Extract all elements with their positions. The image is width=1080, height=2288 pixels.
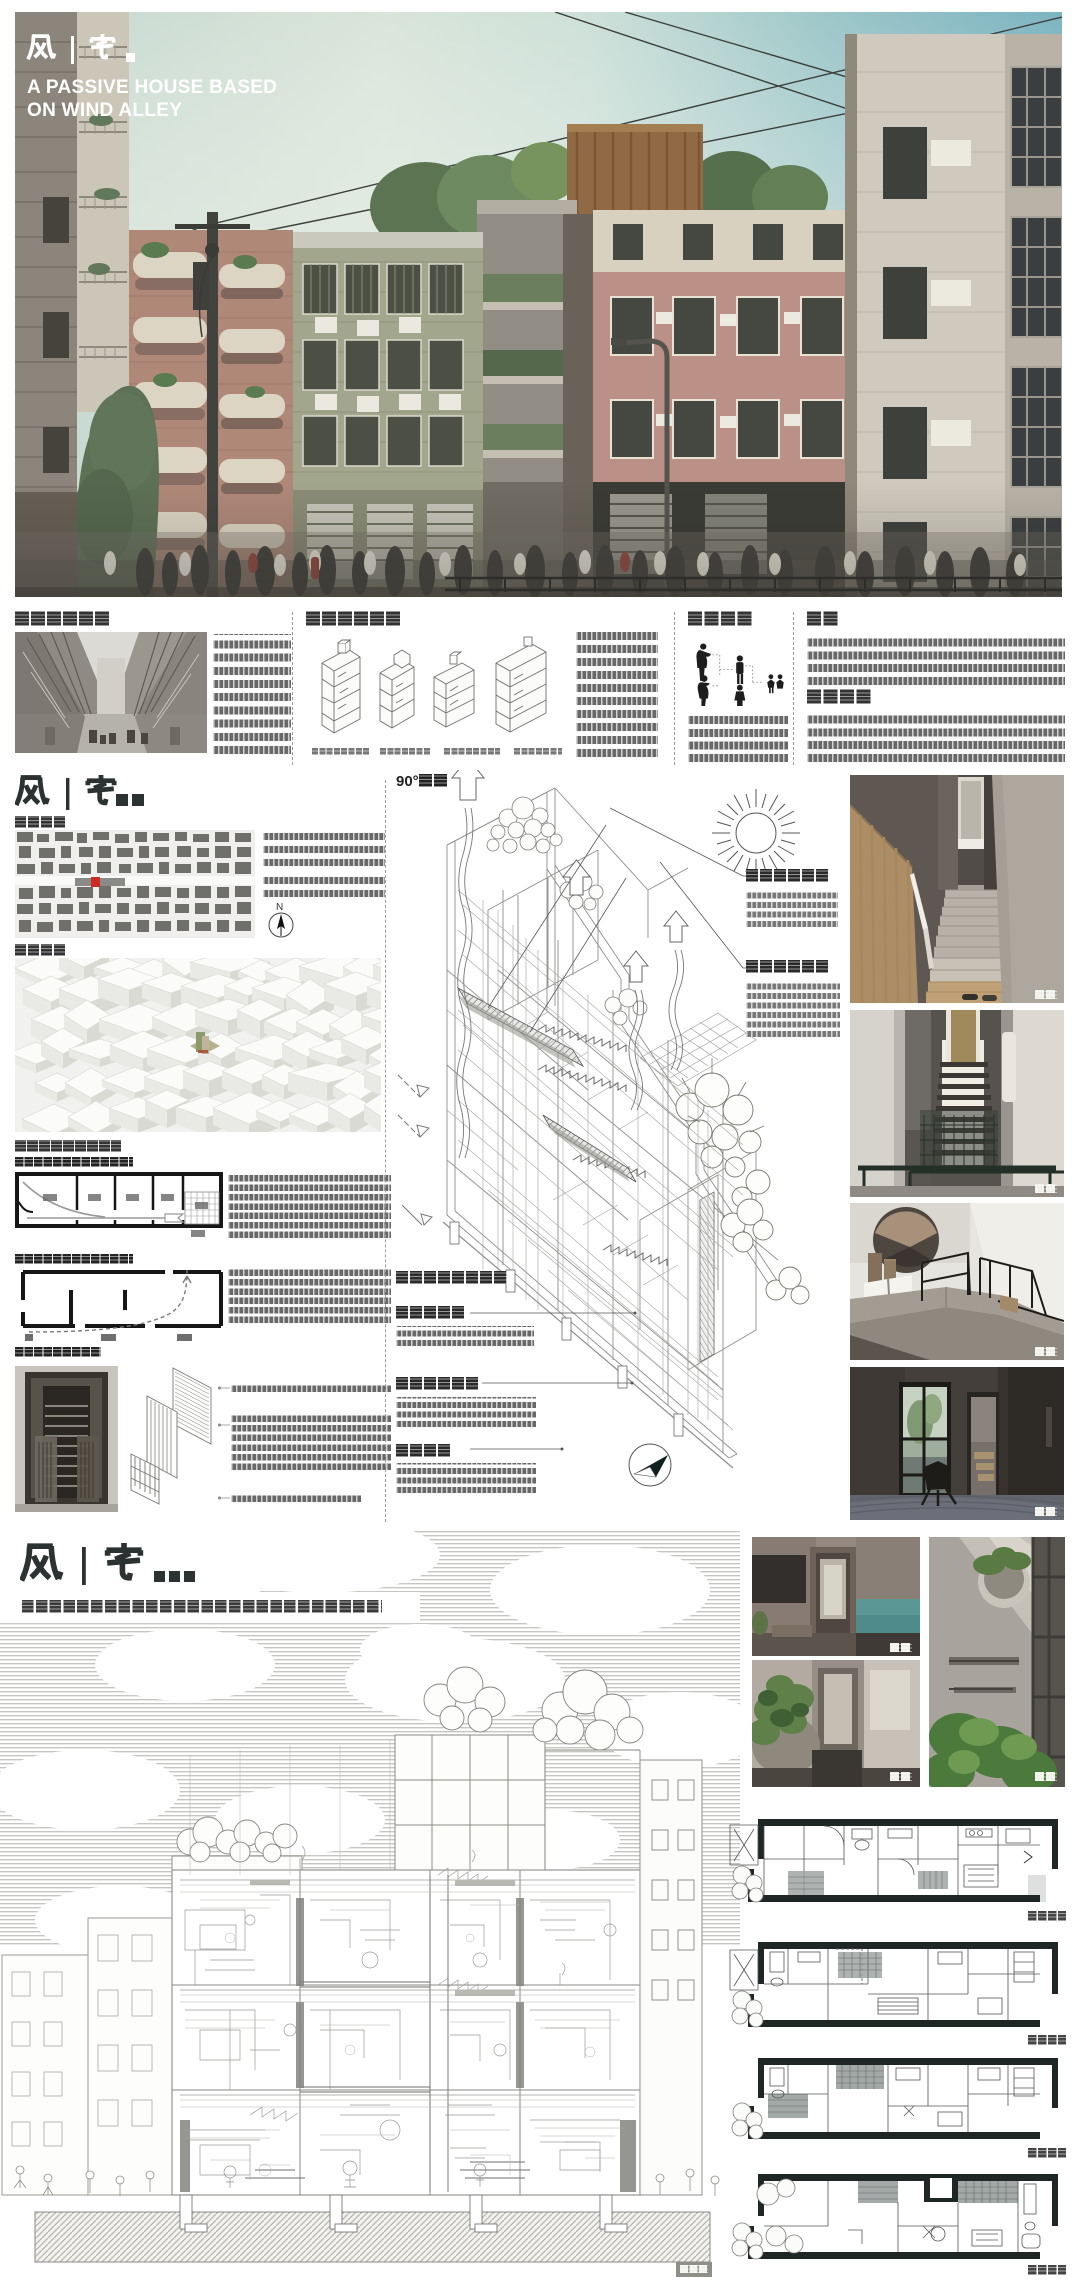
svg-text:N: N: [276, 902, 283, 913]
svg-text:A PASSIVE HOUSE BASED: A PASSIVE HOUSE BASED: [27, 77, 277, 98]
svg-text:ON WIND ALLEY: ON WIND ALLEY: [27, 100, 182, 121]
